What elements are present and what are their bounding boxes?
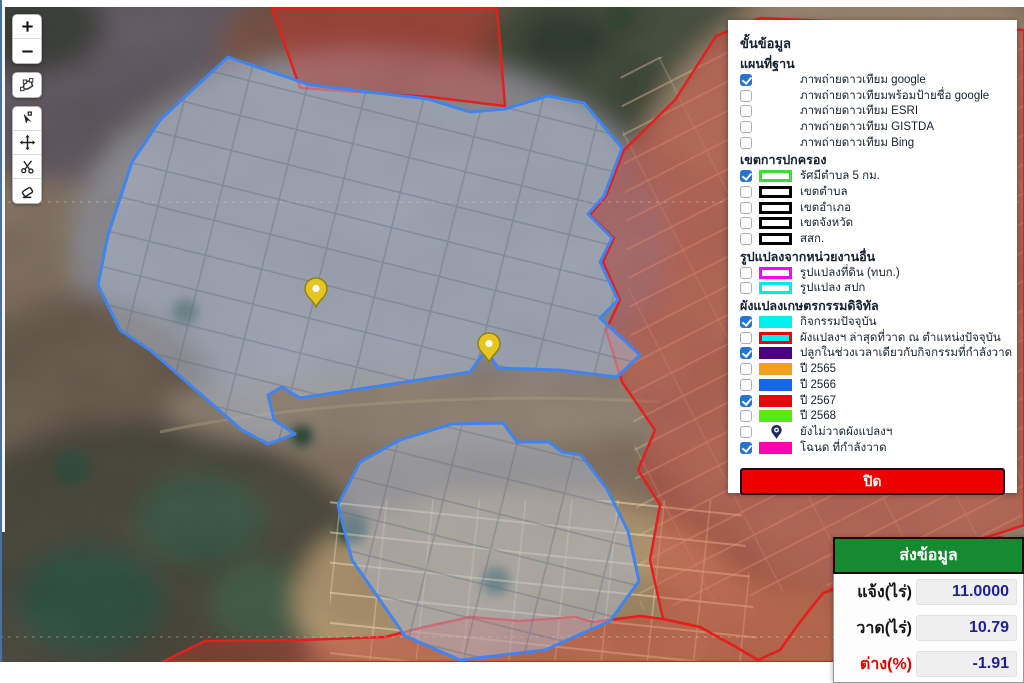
checkbox-unchecked[interactable] (740, 332, 752, 344)
layer-row[interactable]: ปี 2567 (740, 393, 1005, 409)
checkbox-unchecked[interactable] (740, 121, 752, 133)
section-heading: รูปแปลงจากหน่วยงานอื่น (740, 249, 1005, 265)
layer-row[interactable]: ยังไม่วาดผังแปลงฯ (740, 424, 1005, 440)
layer-row[interactable]: ภาพถ่ายดาวเทียม GISTDA (740, 119, 1005, 135)
checkbox-unchecked[interactable] (740, 410, 752, 422)
layer-row[interactable]: ปี 2565 (740, 361, 1005, 377)
section-heading: เขตการปกครอง (740, 152, 1005, 168)
swatch-slot (759, 379, 793, 391)
checkbox-unchecked[interactable] (740, 105, 752, 117)
summary-table-header: ส่งข้อมูล (833, 537, 1024, 574)
checkbox-unchecked[interactable] (740, 267, 752, 279)
layer-swatch-outline (759, 217, 792, 229)
swatch-slot (759, 217, 793, 229)
checkbox-checked[interactable] (740, 316, 752, 328)
layer-row[interactable]: ภาพถ่ายดาวเทียม google (740, 72, 1005, 88)
layer-swatch-fill (759, 363, 792, 375)
tool-group (12, 72, 42, 98)
edit-vertex-button[interactable] (13, 107, 41, 131)
layer-row[interactable]: รูปแปลง สปก (740, 281, 1005, 297)
map-toolbar (12, 14, 42, 204)
layer-swatch-outline (759, 233, 792, 245)
eraser-icon (19, 183, 36, 200)
zoom-out-button[interactable] (13, 39, 41, 63)
layer-row[interactable]: ภาพถ่ายดาวเทียมพร้อมป้ายชื่อ google (740, 88, 1005, 104)
layer-swatch-outline (759, 170, 792, 182)
layer-label: ภาพถ่ายดาวเทียม Bing (800, 134, 914, 152)
summary-row-value: 10.79 (916, 615, 1017, 641)
layer-label: รูปแปลง สปก (800, 279, 865, 297)
layer-swatch-fill (759, 410, 792, 422)
layer-swatch-fill (759, 442, 792, 454)
checkbox-unchecked[interactable] (740, 282, 752, 294)
checkbox-unchecked[interactable] (740, 217, 752, 229)
zoom-in-button[interactable] (13, 15, 41, 39)
plus-icon (20, 19, 35, 34)
summary-row-label: ต่าง(%) (838, 652, 912, 677)
move-icon (19, 134, 36, 151)
cut-feature-button[interactable] (13, 155, 41, 179)
layer-row[interactable]: เขตจังหวัด (740, 216, 1005, 232)
checkbox-unchecked[interactable] (740, 363, 752, 375)
section-heading: ผังแปลงเกษตรกรรมดิจิทัล (740, 298, 1005, 314)
tool-group (12, 14, 42, 64)
checkbox-checked[interactable] (740, 395, 752, 407)
polygon-icon (18, 76, 36, 94)
swatch-slot (759, 424, 793, 440)
layer-swatch-fill (759, 379, 792, 391)
checkbox-unchecked[interactable] (740, 186, 752, 198)
layer-row[interactable]: ปี 2568 (740, 408, 1005, 424)
layer-row[interactable]: กิจกรรมปัจจุบัน (740, 314, 1005, 330)
section-heading: แผนที่ฐาน (740, 56, 1005, 72)
layer-swatch-fill (759, 316, 792, 328)
minus-icon (20, 44, 35, 59)
summary-row: แจ้ง(ไร่)11.0000 (834, 574, 1023, 610)
layer-swatch-fill (759, 395, 792, 407)
layer-row[interactable]: ภาพถ่ายดาวเทียม ESRI (740, 103, 1005, 119)
layer-row[interactable]: รูปแปลงที่ดิน (ทบก.) (740, 265, 1005, 281)
move-feature-button[interactable] (13, 131, 41, 155)
summary-row-value: -1.91 (916, 651, 1017, 677)
pin-icon (769, 424, 784, 440)
summary-row: วาด(ไร่)10.79 (834, 610, 1023, 646)
checkbox-unchecked[interactable] (740, 233, 752, 245)
scissors-icon (19, 158, 36, 175)
swatch-slot (759, 186, 793, 198)
layer-label: สสก. (800, 230, 824, 248)
swatch-slot (759, 395, 793, 407)
checkbox-unchecked[interactable] (740, 202, 752, 214)
checkbox-checked[interactable] (740, 74, 752, 86)
layer-row[interactable]: ปี 2566 (740, 377, 1005, 393)
swatch-slot (759, 347, 793, 359)
draw-polygon-button[interactable] (13, 73, 41, 97)
layer-row[interactable]: เขตตำบล (740, 184, 1005, 200)
checkbox-checked[interactable] (740, 347, 752, 359)
layer-label: โฉนด ที่กำลังวาด (800, 439, 887, 457)
layer-swatch-outline (759, 282, 792, 294)
checkbox-unchecked[interactable] (740, 137, 752, 149)
layer-swatch-outline (759, 267, 792, 279)
swatch-slot (759, 282, 793, 294)
layer-row[interactable]: ผังแปลงฯ ล่าสุดที่วาด ณ ตำแหน่งปัจจุบัน (740, 330, 1005, 346)
layers-panel-title: ขั้นข้อมูล (740, 33, 1005, 54)
layer-swatch-outline (759, 202, 792, 214)
edit-vertex-icon (19, 110, 36, 127)
swatch-slot (759, 363, 793, 375)
checkbox-unchecked[interactable] (740, 426, 752, 438)
close-button[interactable]: ปิด (740, 468, 1005, 495)
layer-row[interactable]: โฉนด ที่กำลังวาด (740, 440, 1005, 456)
swatch-slot (759, 202, 793, 214)
layer-row[interactable]: รัศมีตำบล 5 กม. (740, 168, 1005, 184)
checkbox-unchecked[interactable] (740, 90, 752, 102)
erase-feature-button[interactable] (13, 179, 41, 203)
swatch-slot (759, 332, 793, 344)
layer-row[interactable]: เขตอำเภอ (740, 200, 1005, 216)
map-application: ขั้นข้อมูล แผนที่ฐานภาพถ่ายดาวเทียม goog… (0, 0, 1024, 662)
swatch-slot (759, 233, 793, 245)
layers-panel: ขั้นข้อมูล แผนที่ฐานภาพถ่ายดาวเทียม goog… (728, 20, 1017, 493)
swatch-slot (759, 442, 793, 454)
tool-group (12, 106, 42, 204)
layer-swatch-outline (759, 186, 792, 198)
layer-swatch-fill (759, 332, 792, 344)
summary-table: ส่งข้อมูล แจ้ง(ไร่)11.0000วาด(ไร่)10.79ต… (833, 538, 1024, 683)
layer-row[interactable]: สสก. (740, 231, 1005, 247)
checkbox-checked[interactable] (740, 442, 752, 454)
summary-row-label: วาด(ไร่) (838, 616, 912, 641)
layer-row[interactable]: ภาพถ่ายดาวเทียม Bing (740, 135, 1005, 151)
checkbox-checked[interactable] (740, 170, 752, 182)
swatch-slot (759, 316, 793, 328)
summary-row: ต่าง(%)-1.91 (834, 646, 1023, 682)
summary-row-value: 11.0000 (916, 579, 1017, 605)
swatch-slot (759, 170, 793, 182)
swatch-slot (759, 267, 793, 279)
layer-row[interactable]: ปลูกในช่วงเวลาเดียวกับกิจกรรมที่กำลังวาด (740, 346, 1005, 362)
layer-swatch-fill (759, 347, 792, 359)
swatch-slot (759, 410, 793, 422)
summary-row-label: แจ้ง(ไร่) (838, 580, 912, 605)
checkbox-unchecked[interactable] (740, 379, 752, 391)
